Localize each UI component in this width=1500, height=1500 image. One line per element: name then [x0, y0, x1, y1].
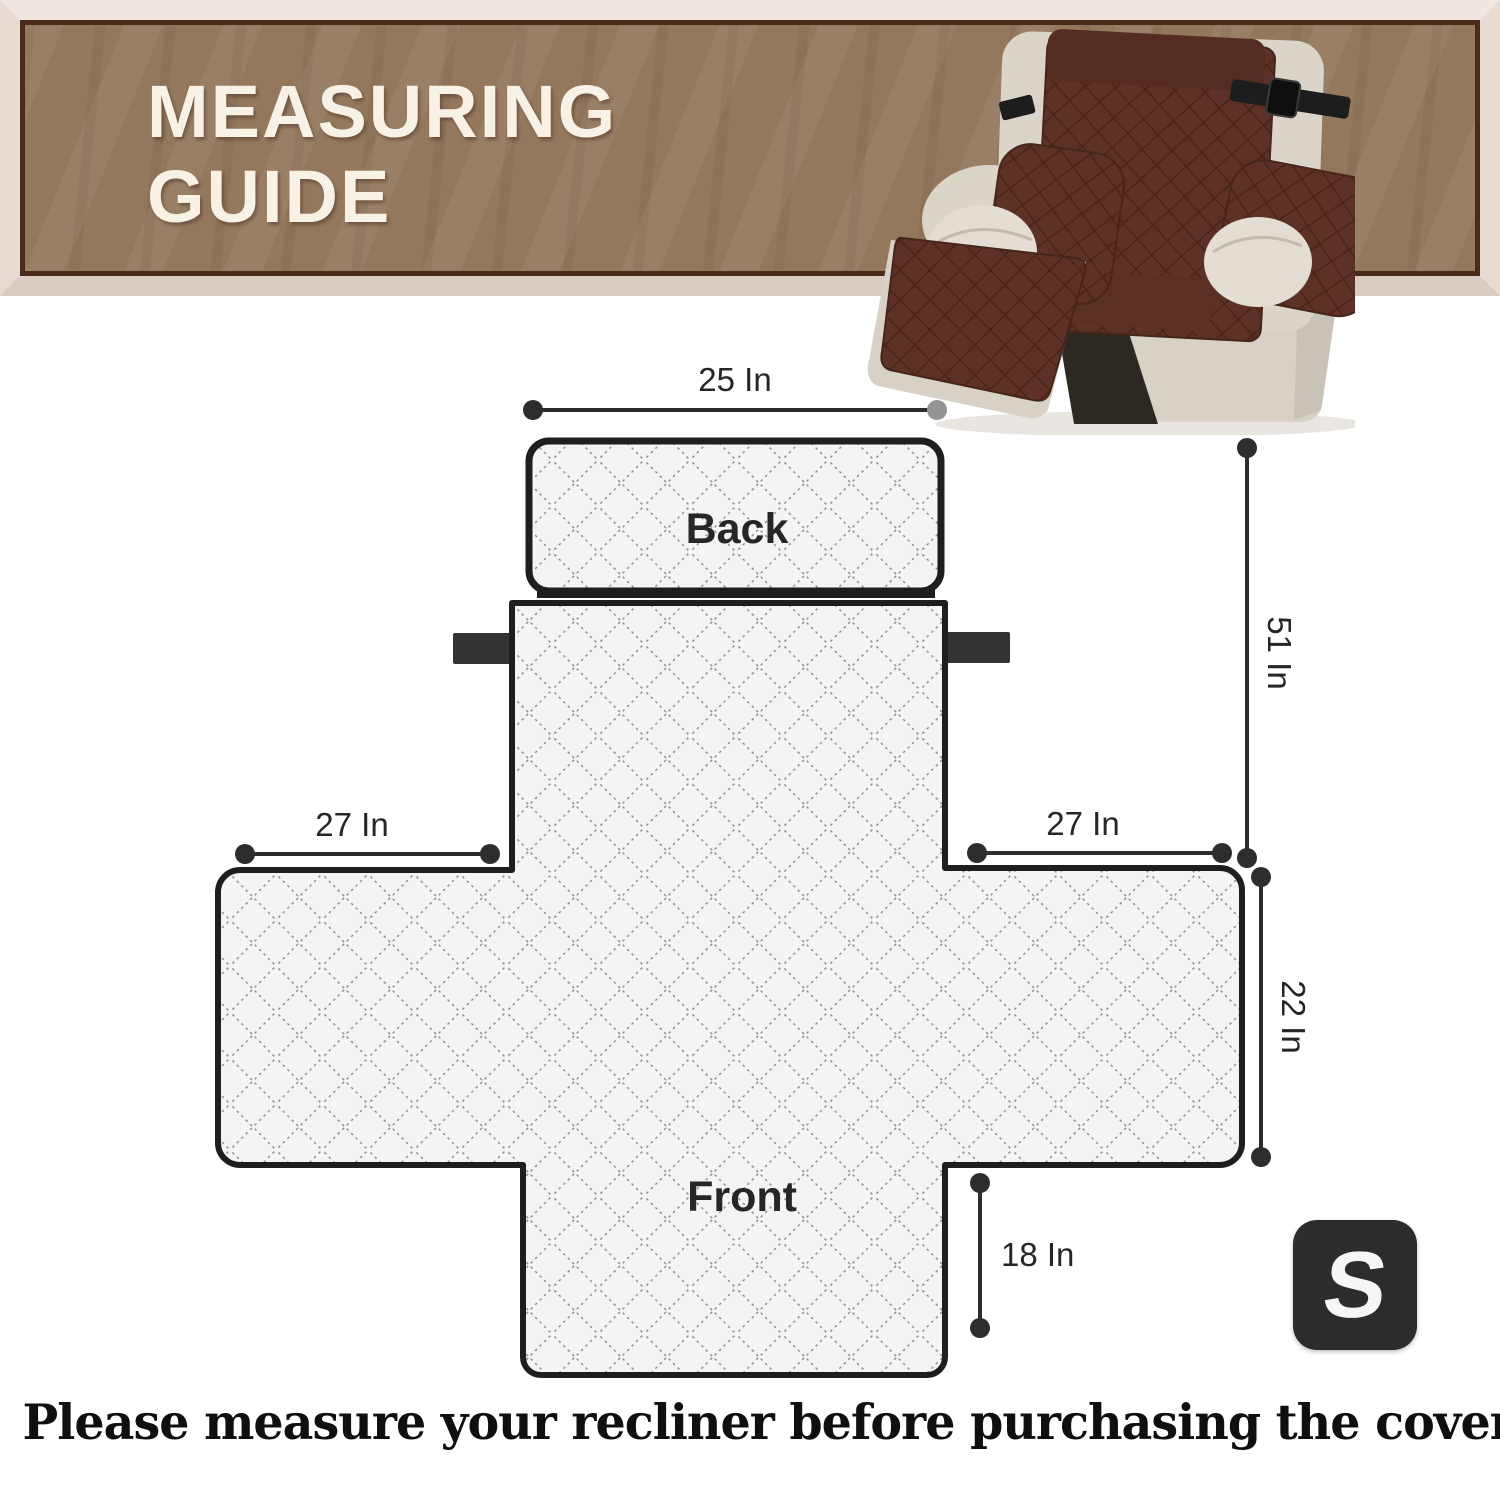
dimension-dot — [970, 1173, 990, 1193]
back-piece: Back — [529, 441, 941, 594]
size-badge-letter: S — [1318, 1238, 1392, 1332]
dimension-left-arm-label: 27 In — [315, 806, 388, 843]
back-label: Back — [686, 505, 789, 553]
recliner-product-photo — [855, 20, 1355, 435]
dimension-seat-depth: 22 In — [1251, 867, 1312, 1167]
dimension-left-arm: 27 In — [235, 806, 500, 864]
dimension-total-length: 51 In — [1237, 438, 1298, 868]
dimension-front-drop: 18 In — [970, 1173, 1074, 1338]
right-strap — [943, 632, 1010, 663]
strap-buckle — [1266, 78, 1301, 118]
recliner-illustration — [868, 28, 1355, 435]
left-strap — [453, 633, 514, 664]
dimension-right-arm-label: 27 In — [1046, 805, 1119, 842]
dimension-dot — [1212, 843, 1232, 863]
measurement-diagram: Back Front 25 In 27 In 27 In 51 In — [150, 360, 1350, 1392]
dimension-front-drop-label: 18 In — [1001, 1236, 1074, 1273]
right-arm-front-pillow — [1204, 217, 1312, 307]
dimension-right-arm: 27 In — [967, 805, 1232, 863]
dimension-dot — [523, 400, 543, 420]
size-badge: S — [1293, 1220, 1417, 1350]
dimension-dot — [480, 844, 500, 864]
dimension-dot — [1251, 1147, 1271, 1167]
dimension-dot — [1251, 867, 1271, 887]
dimension-dot — [1237, 438, 1257, 458]
dimension-back-width-label: 25 In — [698, 361, 771, 398]
dimension-dot — [1237, 848, 1257, 868]
dimension-total-length-label: 51 In — [1261, 616, 1298, 689]
front-label: Front — [687, 1173, 797, 1221]
dimension-seat-depth-label: 22 In — [1275, 980, 1312, 1053]
dimension-dot — [235, 844, 255, 864]
main-cover-shape — [218, 603, 1242, 1375]
footer-note: Please measure your recliner before purc… — [23, 1393, 1478, 1451]
dimension-dot — [967, 843, 987, 863]
dimension-dot — [970, 1318, 990, 1338]
